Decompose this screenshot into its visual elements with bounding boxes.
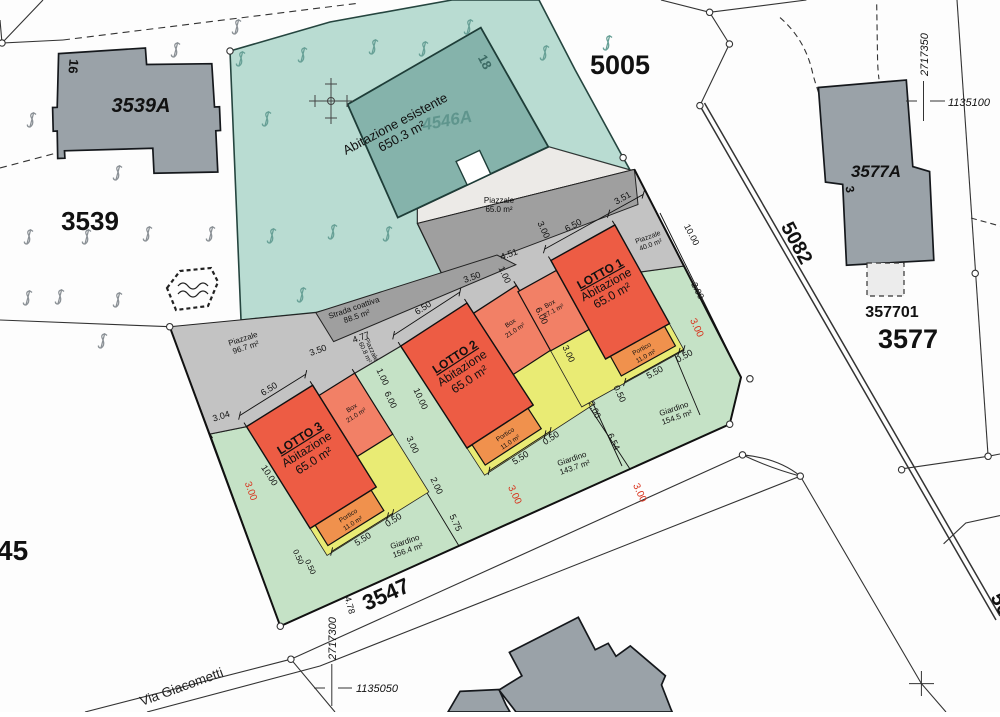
svg-text:3577A: 3577A [851,162,901,181]
svg-text:2717300: 2717300 [327,616,339,661]
svg-text:5005: 5005 [590,50,650,80]
svg-text:3539: 3539 [61,206,119,236]
svg-text:1135050: 1135050 [356,683,399,695]
svg-text:3539A: 3539A [112,95,171,117]
svg-text:357701: 357701 [865,304,918,321]
svg-text:2717350: 2717350 [919,32,931,77]
svg-text:45: 45 [0,535,28,566]
svg-text:16: 16 [65,59,81,75]
svg-text:Piazzale: Piazzale [484,196,515,205]
svg-text:65.0 m²: 65.0 m² [485,205,512,214]
svg-text:3577: 3577 [878,324,938,354]
svg-text:1135100: 1135100 [948,97,991,109]
